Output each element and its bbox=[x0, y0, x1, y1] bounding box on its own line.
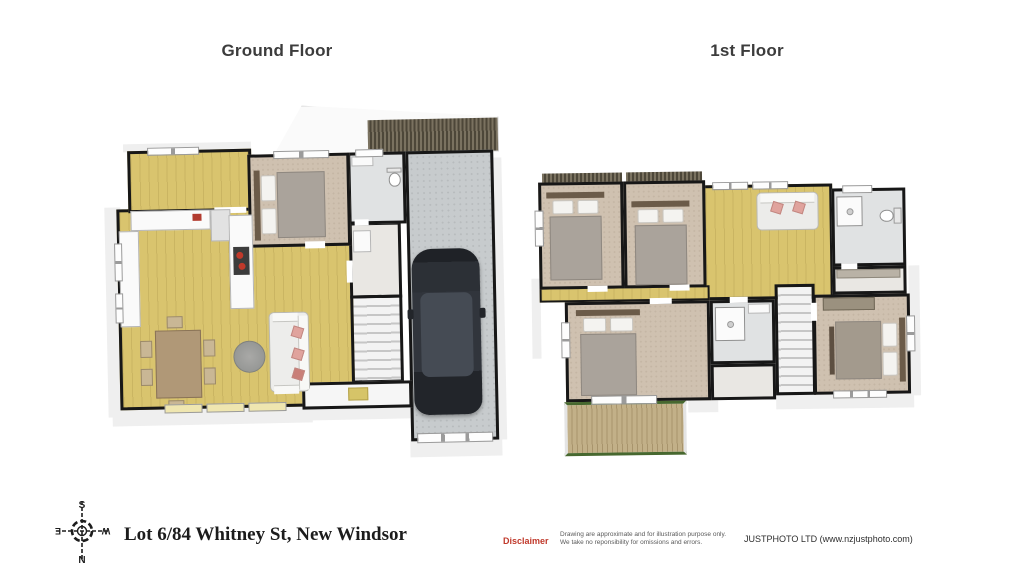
sofa-arm bbox=[273, 313, 298, 323]
cooktop bbox=[233, 247, 250, 275]
bed-pillow bbox=[577, 200, 598, 214]
car-roof-glass bbox=[420, 292, 474, 377]
entry-hall bbox=[127, 149, 252, 214]
shower-drain bbox=[846, 208, 853, 215]
door-opening bbox=[346, 261, 352, 283]
door-opening bbox=[355, 219, 369, 225]
loveseat bbox=[756, 192, 819, 231]
vanity bbox=[351, 156, 373, 166]
compass-south-label: S bbox=[79, 500, 86, 511]
bed-pillow bbox=[662, 209, 683, 223]
door-opening bbox=[650, 298, 672, 304]
dining-chair bbox=[167, 316, 183, 328]
bed-pillow bbox=[882, 352, 897, 376]
compass-west-label: W bbox=[101, 526, 110, 536]
shower-drain bbox=[727, 321, 734, 328]
bed-duvet bbox=[635, 225, 688, 286]
porch-roof bbox=[272, 101, 499, 156]
window bbox=[115, 293, 124, 323]
disclaimer-text: Drawing are approximate and for illustra… bbox=[560, 531, 735, 547]
ground-floor-title: Ground Floor bbox=[167, 41, 387, 61]
compass-east-label: E bbox=[55, 526, 61, 536]
double-bed bbox=[576, 309, 641, 398]
compass-north-label: N bbox=[78, 555, 85, 564]
wall-oven bbox=[192, 214, 201, 221]
bed-duvet bbox=[277, 171, 326, 238]
floor-plan-sheet: Ground Floor 1st Floor bbox=[0, 0, 1024, 576]
car-mirror bbox=[407, 309, 413, 319]
car bbox=[411, 248, 482, 415]
window bbox=[752, 181, 788, 190]
disclaimer-line-1: Drawing are approximate and for illustra… bbox=[560, 531, 726, 538]
ranch-slider bbox=[591, 395, 657, 405]
bed-duvet bbox=[550, 216, 603, 281]
compass-rose-icon: S N E W bbox=[52, 498, 112, 564]
window bbox=[842, 185, 872, 193]
double-bed bbox=[546, 192, 605, 283]
first-floor-plan bbox=[530, 165, 924, 470]
door-opening bbox=[305, 241, 325, 248]
window bbox=[712, 182, 748, 191]
window bbox=[114, 243, 123, 281]
bed-headboard bbox=[546, 192, 604, 199]
garage-door bbox=[417, 432, 493, 444]
dining-chair bbox=[141, 369, 153, 386]
bed-duvet bbox=[835, 321, 882, 380]
double-bed bbox=[829, 318, 906, 383]
dining-chair bbox=[204, 367, 216, 384]
staircase bbox=[775, 284, 817, 396]
window bbox=[355, 149, 383, 158]
sofa-pillow bbox=[792, 201, 806, 215]
vanity bbox=[748, 303, 770, 313]
bed-pillow bbox=[261, 208, 277, 234]
sofa-pillow bbox=[770, 201, 784, 215]
bed-duvet bbox=[580, 333, 637, 396]
ground-floor-plan bbox=[58, 107, 507, 468]
window bbox=[833, 390, 887, 399]
bed-pillow bbox=[610, 317, 633, 331]
balcony bbox=[564, 401, 687, 457]
shower bbox=[715, 307, 745, 341]
toilet-tank bbox=[893, 208, 901, 224]
disclaimer-line-2: We take no reponsibility for omissions a… bbox=[560, 539, 702, 546]
loveseat-back bbox=[760, 193, 814, 204]
dining-table bbox=[155, 330, 202, 399]
car-mirror bbox=[479, 308, 485, 318]
window bbox=[147, 147, 199, 156]
window bbox=[273, 150, 329, 159]
property-address: Lot 6/84 Whitney St, New Windsor bbox=[124, 524, 407, 546]
window bbox=[164, 404, 202, 414]
window bbox=[561, 322, 571, 358]
door-mat bbox=[348, 387, 368, 400]
staircase bbox=[350, 295, 404, 384]
cooktop-burner bbox=[238, 263, 245, 270]
sofa-arm bbox=[274, 385, 299, 395]
double-bed bbox=[254, 169, 327, 240]
bed-headboard bbox=[631, 201, 689, 208]
door-opening bbox=[588, 286, 608, 292]
pergola-slats bbox=[368, 118, 499, 153]
laundry-appliance bbox=[353, 230, 371, 252]
bed-pillow bbox=[882, 323, 897, 347]
door-opening bbox=[811, 303, 817, 321]
bed-pillow bbox=[583, 318, 606, 332]
dining-chair bbox=[140, 341, 152, 358]
built-in-wardrobe bbox=[823, 297, 875, 311]
window bbox=[206, 403, 244, 413]
company-credit: JUSTPHOTO LTD (www.nzjustphoto.com) bbox=[744, 534, 913, 544]
bed-headboard bbox=[576, 309, 640, 316]
toilet bbox=[389, 173, 401, 187]
closet bbox=[711, 363, 776, 400]
window bbox=[534, 211, 544, 247]
shower bbox=[836, 196, 862, 226]
door-opening bbox=[730, 297, 748, 303]
wardrobe-shelf bbox=[836, 269, 900, 279]
double-bed bbox=[631, 201, 690, 288]
cooktop-burner bbox=[236, 252, 243, 259]
bed-headboard bbox=[899, 318, 906, 382]
window bbox=[906, 315, 916, 351]
sofa bbox=[269, 311, 311, 392]
bed-end-bench bbox=[829, 327, 835, 375]
bed-pillow bbox=[261, 175, 277, 201]
outer-wall-face bbox=[688, 400, 718, 412]
first-floor-title: 1st Floor bbox=[637, 41, 857, 61]
bed-pillow bbox=[552, 200, 573, 214]
window bbox=[248, 402, 286, 412]
bed-pillow bbox=[637, 209, 658, 223]
dining-chair bbox=[203, 339, 215, 356]
toilet bbox=[880, 210, 894, 222]
disclaimer-label: Disclaimer bbox=[503, 536, 549, 546]
